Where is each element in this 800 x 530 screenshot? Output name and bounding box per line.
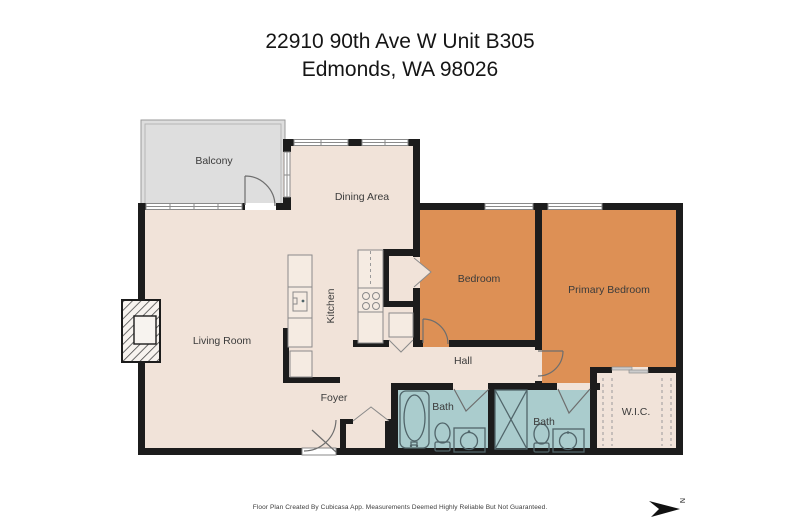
disclaimer-text: Floor Plan Created By Cubicasa App. Meas… bbox=[0, 504, 800, 511]
room-label-kitchen: Kitchen bbox=[325, 288, 337, 323]
address-line-2: Edmonds, WA 98026 bbox=[0, 56, 800, 84]
room-label-dining: Dining Area bbox=[335, 191, 389, 203]
room-label-wic: W.I.C. bbox=[622, 406, 651, 418]
room-label-bath1: Bath bbox=[432, 401, 454, 413]
room-label-balcony: Balcony bbox=[195, 155, 232, 167]
compass-north-letter: N bbox=[678, 498, 685, 503]
room-label-primary: Primary Bedroom bbox=[568, 284, 650, 296]
room-label-hall: Hall bbox=[454, 355, 472, 367]
bath1-floor bbox=[398, 390, 488, 448]
floor-plan-page: 22910 90th Ave W Unit B305 Edmonds, WA 9… bbox=[0, 0, 800, 530]
room-label-living: Living Room bbox=[193, 335, 251, 347]
address-line-1: 22910 90th Ave W Unit B305 bbox=[0, 28, 800, 56]
room-label-foyer: Foyer bbox=[321, 392, 348, 404]
page-title: 22910 90th Ave W Unit B305 Edmonds, WA 9… bbox=[0, 28, 800, 84]
room-label-bath2: Bath bbox=[533, 416, 555, 428]
fireplace bbox=[122, 300, 160, 362]
pantry-closet bbox=[389, 313, 413, 337]
room-label-bedroom: Bedroom bbox=[458, 273, 501, 285]
